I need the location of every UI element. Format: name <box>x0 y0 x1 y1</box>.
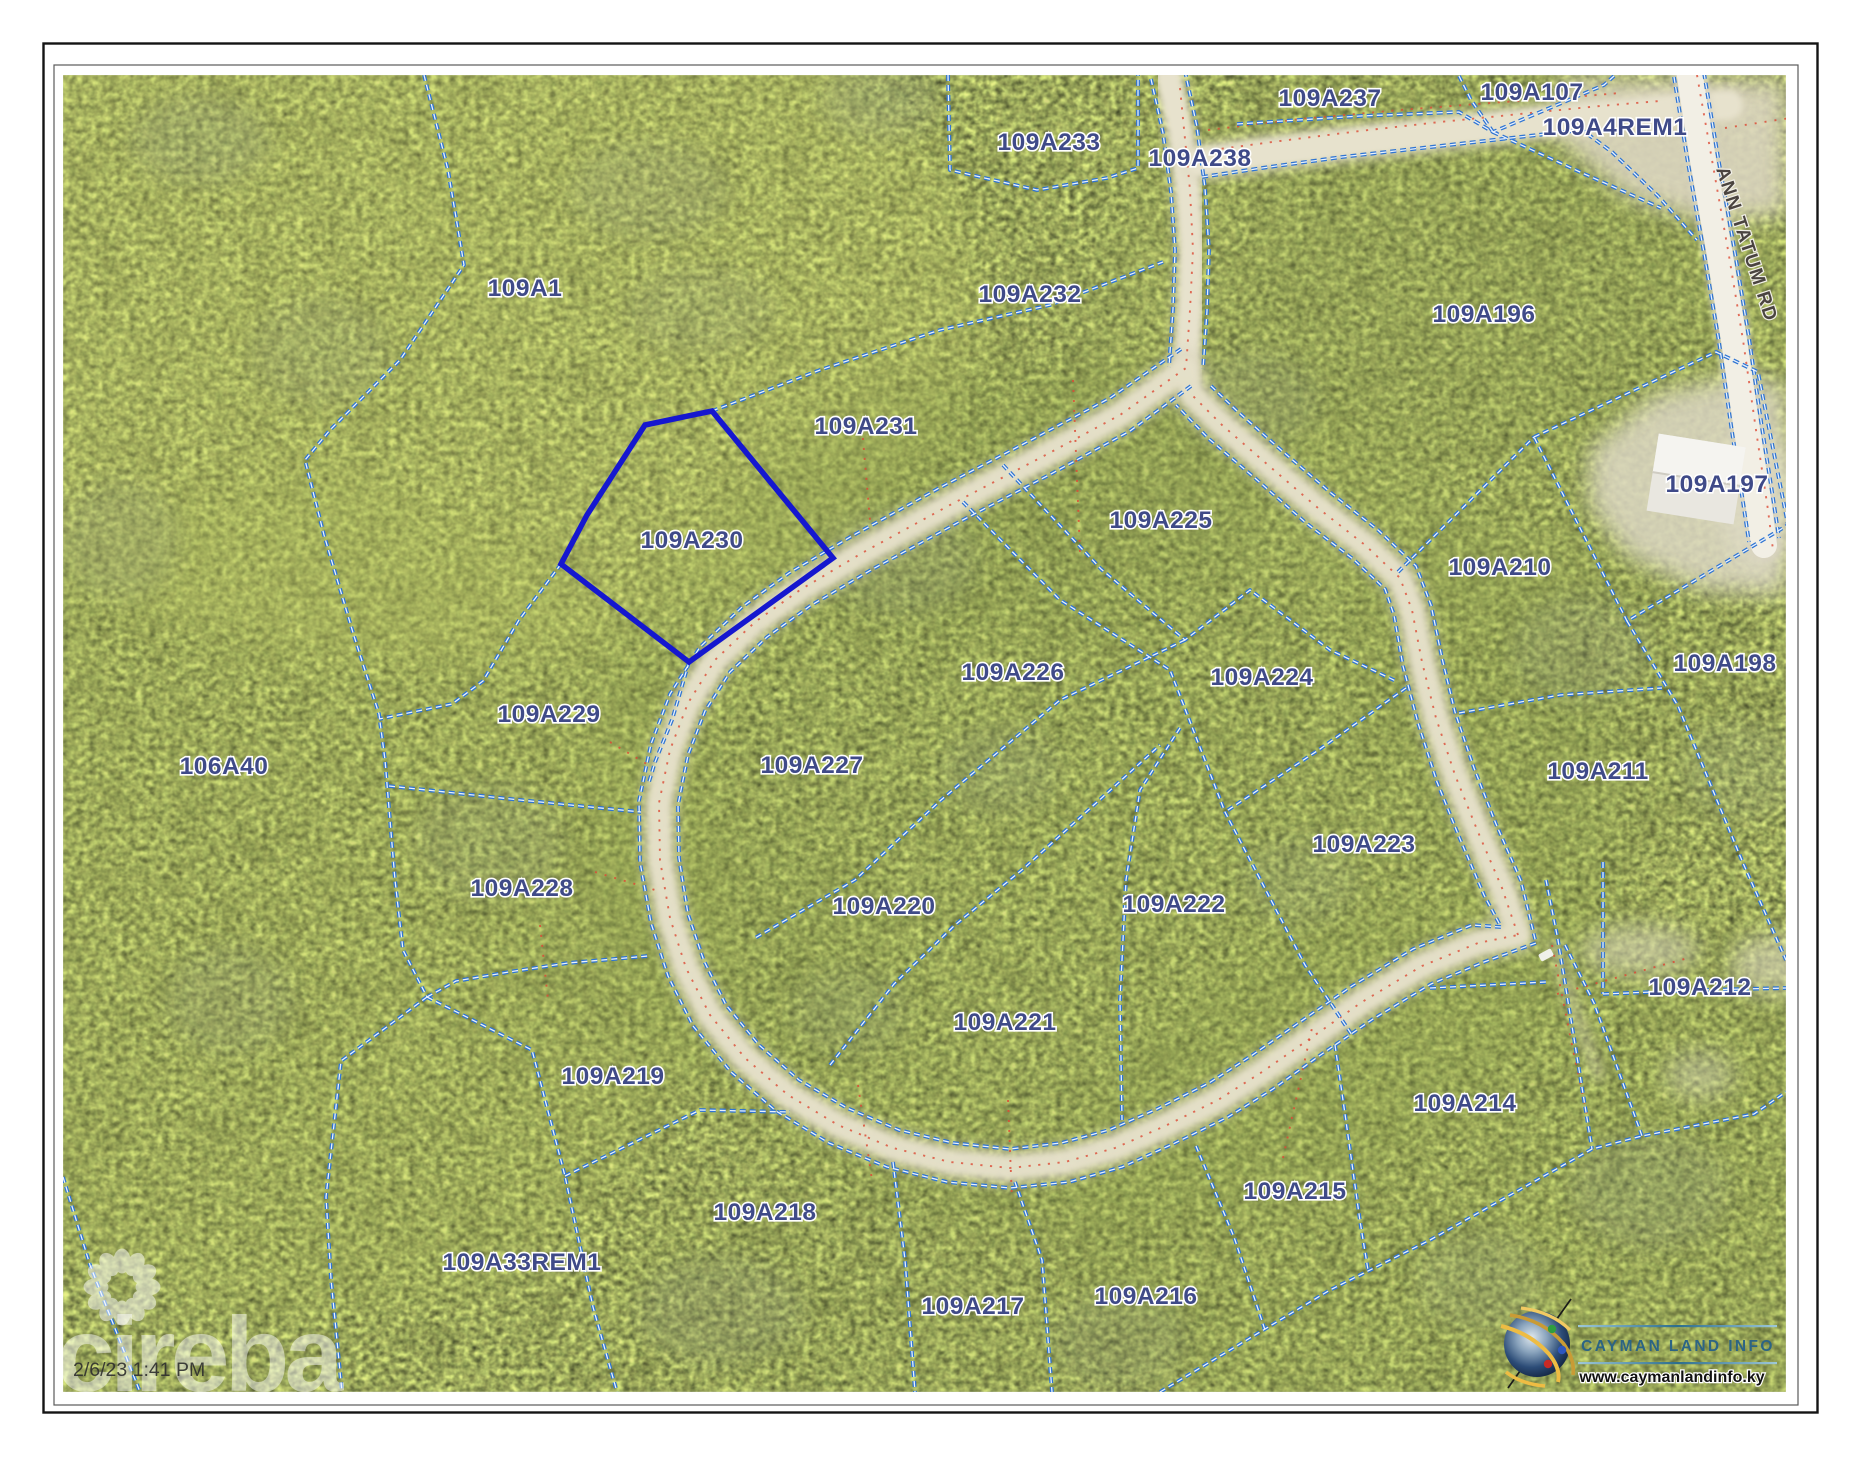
svg-text:109A238: 109A238 <box>1149 145 1252 172</box>
svg-text:109A196: 109A196 <box>1433 301 1536 328</box>
svg-text:109A4REM1: 109A4REM1 <box>1543 114 1688 141</box>
svg-text:www.caymanlandinfo.ky: www.caymanlandinfo.ky <box>1578 1369 1764 1386</box>
svg-text:109A228: 109A228 <box>471 875 574 902</box>
svg-text:109A237: 109A237 <box>1279 85 1382 112</box>
svg-text:109A214: 109A214 <box>1414 1090 1517 1117</box>
svg-text:2/6/23 1:41 PM: 2/6/23 1:41 PM <box>73 1359 205 1381</box>
svg-text:CAYMAN LAND INFO: CAYMAN LAND INFO <box>1581 1338 1775 1355</box>
svg-text:109A107: 109A107 <box>1481 79 1584 106</box>
svg-text:109A210: 109A210 <box>1449 554 1552 581</box>
svg-text:109A212: 109A212 <box>1649 974 1752 1001</box>
svg-text:109A219: 109A219 <box>562 1063 665 1090</box>
svg-text:109A229: 109A229 <box>498 701 601 728</box>
svg-text:109A231: 109A231 <box>815 413 918 440</box>
svg-text:109A232: 109A232 <box>979 281 1082 308</box>
svg-text:109A225: 109A225 <box>1110 507 1213 534</box>
svg-text:109A224: 109A224 <box>1211 664 1314 691</box>
svg-text:109A218: 109A218 <box>714 1199 817 1226</box>
svg-text:109A222: 109A222 <box>1123 891 1226 918</box>
svg-text:109A217: 109A217 <box>922 1293 1025 1320</box>
svg-text:109A216: 109A216 <box>1095 1283 1198 1310</box>
svg-text:109A33REM1: 109A33REM1 <box>443 1249 602 1276</box>
svg-text:109A230: 109A230 <box>641 527 744 554</box>
svg-text:109A220: 109A220 <box>833 893 936 920</box>
svg-text:109A221: 109A221 <box>954 1009 1057 1036</box>
svg-text:109A198: 109A198 <box>1674 650 1777 677</box>
svg-text:106A40: 106A40 <box>180 753 269 780</box>
svg-text:109A1: 109A1 <box>488 275 563 302</box>
svg-text:109A197: 109A197 <box>1666 471 1769 498</box>
svg-text:109A226: 109A226 <box>962 659 1065 686</box>
svg-text:109A223: 109A223 <box>1313 831 1416 858</box>
svg-text:109A211: 109A211 <box>1547 758 1649 785</box>
svg-text:109A227: 109A227 <box>761 752 864 779</box>
svg-text:109A233: 109A233 <box>998 129 1101 156</box>
svg-text:109A215: 109A215 <box>1244 1178 1347 1205</box>
